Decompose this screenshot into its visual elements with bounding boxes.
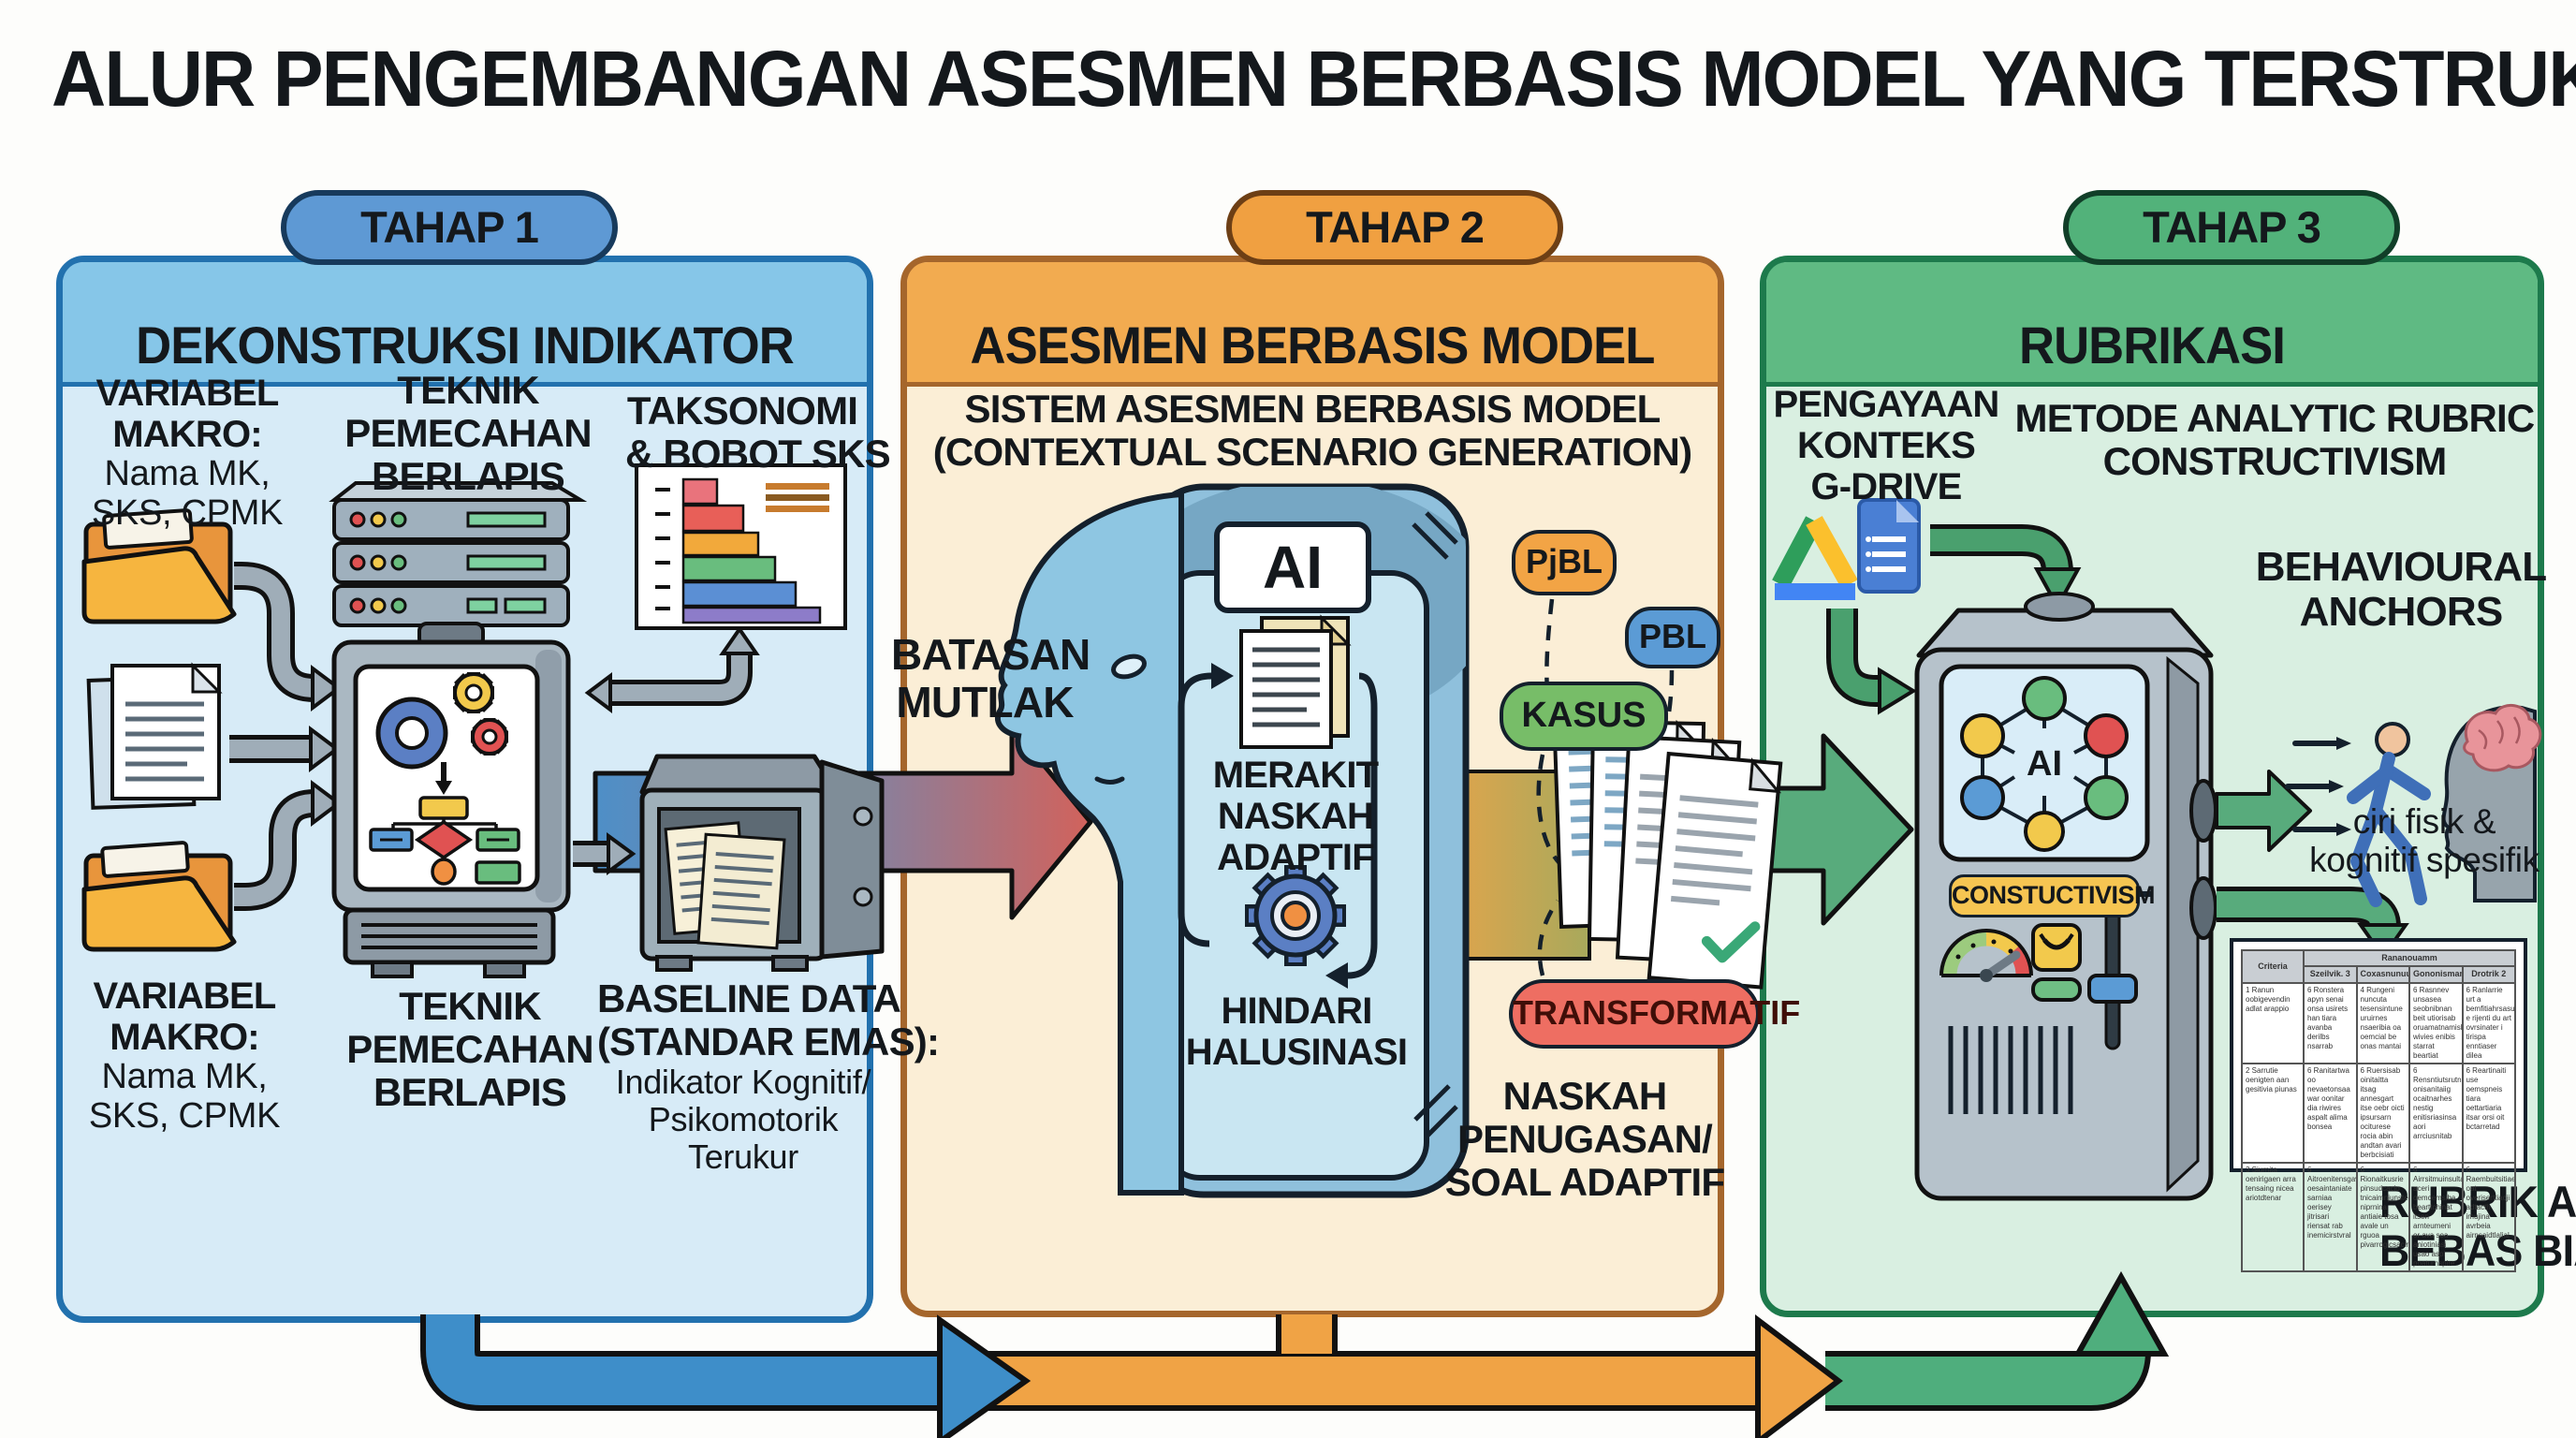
stage2-header-band: ASESMEN BERBASIS MODEL [907, 262, 1718, 387]
device-ai-label: AI [2016, 745, 2072, 783]
ai-box-label: AI [1217, 524, 1368, 610]
flow-arrowhead-orange [1758, 1320, 1838, 1438]
pjbl-pill: PjBL [1512, 530, 1617, 595]
page-title: ALUR PENGEMBANGAN ASESMEN BERBASIS MODEL… [51, 36, 2525, 122]
transformatif-pill: TRANSFORMATIF [1509, 979, 1760, 1049]
label-metode: METODE ANALYTIC RUBRICCONSTRUCTIVISM [2012, 397, 2537, 483]
rubric-table: Criteria Rananouamm Szeilvik. 3 Coxasnun… [2230, 938, 2527, 1172]
rubric-group-header: Rananouamm [2304, 950, 2515, 966]
label-hindari: HINDARIHALUSINASI [1161, 990, 1432, 1073]
constructivism-pill: CONSTUCTIVISM [1949, 874, 2140, 917]
flow-pipe-blue [450, 1314, 1026, 1438]
stage3-pill: TAHAP 3 [2063, 190, 2400, 265]
stage3-header-band: RUBRIKASI [1766, 262, 2538, 387]
kasus-pill: KASUS [1500, 682, 1668, 751]
stage1-heading: DEKONSTRUKSI INDIKATOR [87, 262, 842, 375]
label-behavioural: BEHAVIOURALANCHORS [2247, 545, 2555, 636]
rubric-row: 3 Siurnita oenirigaen arra tensaing nice… [2242, 1163, 2515, 1271]
pbl-pill: PBL [1625, 607, 1720, 668]
label-sistem-asesmen: SISTEM ASESMEN BERBASIS MODEL(CONTEXTUAL… [929, 388, 1696, 474]
label-teknik-bottom: TEKNIKPEMECAHANBERLAPIS [329, 985, 610, 1115]
rubric-col-3: Gononismand [2409, 966, 2463, 982]
rubric-row: 2 Sarrutie oenigten aan gesitivia piunas… [2242, 1064, 2515, 1163]
infographic-canvas: DEKONSTRUKSI INDIKATOR ASESMEN BERBASIS … [0, 0, 2576, 1438]
rubric-col-criteria: Criteria [2242, 950, 2304, 983]
label-merakit: MERAKITNASKAHADAPTIF [1172, 755, 1419, 878]
label-batasan-mutlak: BATASANMUTLAK [891, 631, 1078, 726]
rubric-col-1: Szeilvik. 3 [2304, 966, 2357, 982]
label-baseline-data: BASELINE DATA(STANDAR EMAS): Indikator K… [597, 977, 889, 1175]
label-variabel-makro-bottom: VARIABELMAKRO: Nama MK, SKS, CPMK [67, 976, 301, 1137]
rubric-col-4: Drotrik 2 [2463, 966, 2516, 982]
rubric-row: 1 Ranun oobigevendin adlat arappio6 Rons… [2242, 983, 2515, 1064]
flow-pipe-green [1825, 1341, 2121, 1381]
label-teknik-top: TEKNIKPEMECAHANBERLAPIS [332, 369, 604, 499]
label-variabel-makro-top: VARIABELMAKRO: Nama MK, SKS, CPMK [75, 373, 300, 534]
label-ciri-fisik: ciri fisik &kognitif spesifik [2284, 803, 2565, 879]
stage1-pill: TAHAP 1 [281, 190, 618, 265]
label-naskah: NASKAHPENUGASAN/SOAL ADAPTIF [1440, 1075, 1730, 1205]
rubric-col-2: Coxasnunuun2 [2357, 966, 2410, 982]
label-taksonomi: TAKSONOMI& BOBOT SKS [625, 389, 859, 476]
stage2-pill: TAHAP 2 [1226, 190, 1563, 265]
flow-pipe-orange [983, 1314, 1760, 1381]
stage3-heading: RUBRIKASI [1790, 262, 2515, 375]
label-pengayaan: PENGAYAANKONTEKSG-DRIVE [1769, 384, 2003, 507]
stage2-heading: ASESMEN BERBASIS MODEL [931, 262, 1693, 375]
